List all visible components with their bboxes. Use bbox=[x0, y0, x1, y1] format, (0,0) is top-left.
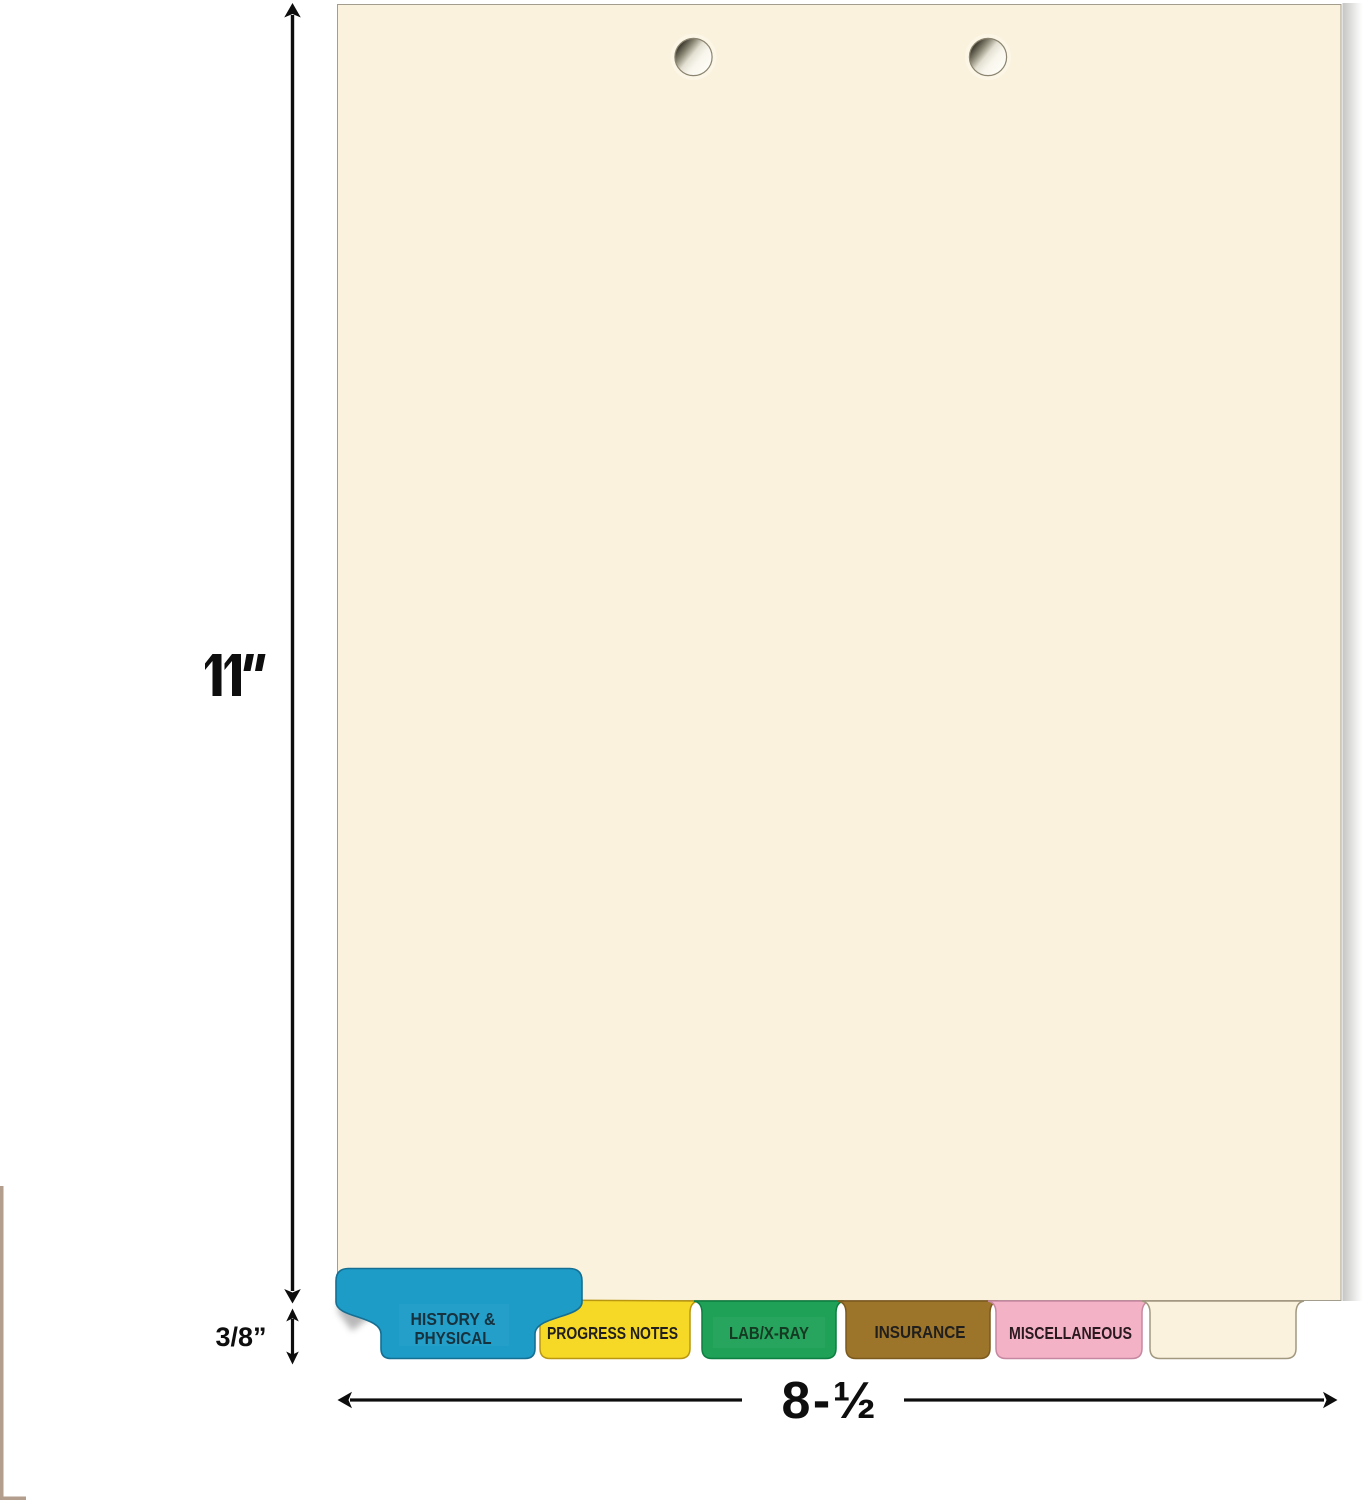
svg-text:3/8”: 3/8” bbox=[215, 1322, 266, 1352]
svg-text:LAB/X-RAY: LAB/X-RAY bbox=[729, 1323, 809, 1343]
svg-text:8-½: 8-½ bbox=[781, 1372, 878, 1430]
svg-text:PROGRESS NOTES: PROGRESS NOTES bbox=[547, 1323, 678, 1343]
svg-text:PHYSICAL: PHYSICAL bbox=[415, 1328, 492, 1348]
svg-text:INSURANCE: INSURANCE bbox=[875, 1322, 966, 1342]
svg-text:HISTORY &: HISTORY & bbox=[411, 1309, 496, 1329]
svg-text:MISCELLANEOUS: MISCELLANEOUS bbox=[1009, 1323, 1132, 1343]
